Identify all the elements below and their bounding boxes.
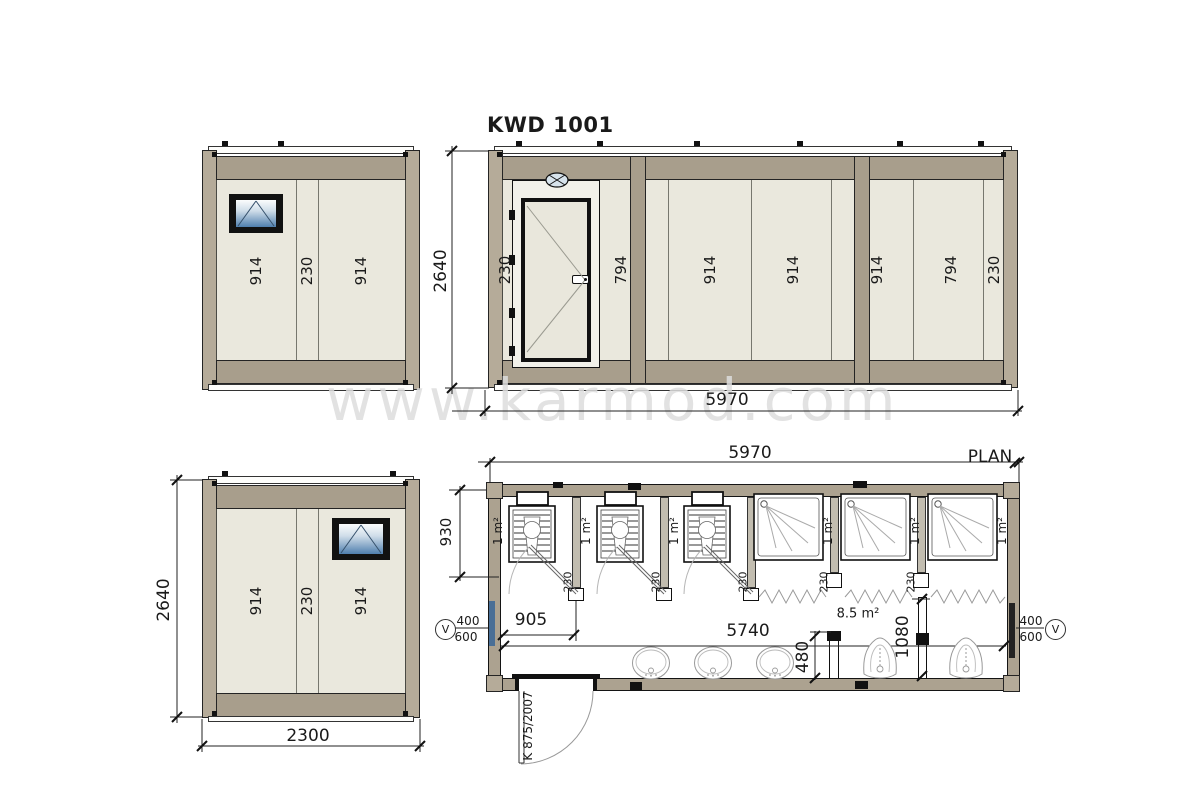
plan-length-dim-label: 5970 <box>728 443 771 463</box>
hall-area-label: 8.5 m² <box>837 607 880 622</box>
plan-corner-post <box>486 675 503 692</box>
panel-joint <box>296 180 297 360</box>
corner-fitting-icon <box>497 380 502 385</box>
top-rail <box>502 156 1004 180</box>
length-dim-label: 5970 <box>705 390 748 410</box>
panel-dim-label: 230 <box>298 257 316 286</box>
roof-clamp-icon <box>694 141 700 146</box>
roof-clamp-icon <box>897 141 903 146</box>
partition-dim-label: 230 <box>818 572 831 593</box>
panel-joint <box>913 180 914 360</box>
shower-fixtures <box>754 494 997 560</box>
corner-fitting-icon <box>1001 152 1006 157</box>
corner-post <box>405 479 420 718</box>
corner-fitting-icon <box>403 380 408 385</box>
roof-edge <box>208 146 414 154</box>
panel-dim-label: 914 <box>701 256 719 285</box>
plan-window-left <box>489 601 495 646</box>
corner-fitting-icon <box>212 711 217 716</box>
screen-dim-label: 480 <box>793 641 813 673</box>
corner-post <box>405 150 420 390</box>
bench-icon <box>512 674 600 679</box>
bottom-rail <box>216 360 406 384</box>
roof-clamp-icon <box>516 141 522 146</box>
cubicle-area-label: 1 m² <box>821 517 835 545</box>
intermediate-post <box>630 156 646 384</box>
window-height-label: 600 <box>455 630 478 644</box>
ventilation-symbol: V <box>435 619 456 640</box>
width-dim-label: 2300 <box>286 726 329 746</box>
ventilation-symbol-letter: V <box>1052 623 1060 636</box>
panel-joint <box>983 180 984 360</box>
window-height-label: 600 <box>1020 630 1043 644</box>
screen-dim-label: 1080 <box>893 615 913 658</box>
roof-drain-icon <box>553 482 563 488</box>
door-hinge-icon <box>509 346 515 356</box>
roof-clamp-icon <box>597 141 603 146</box>
door-handle-dot <box>584 278 587 281</box>
corner-fitting-icon <box>212 152 217 157</box>
panel-joint <box>296 509 297 693</box>
panel-dim-label: 230 <box>298 587 316 616</box>
roof-clamp-icon <box>797 141 803 146</box>
window-glass <box>236 200 276 227</box>
height-dim-label: 2640 <box>154 578 174 621</box>
plan-title: PLAN <box>968 447 1012 467</box>
wc-depth-dim-label: 930 <box>437 518 455 547</box>
roof-edge <box>494 146 1012 154</box>
panel-dim-label: 230 <box>985 256 1003 285</box>
corner-fitting-icon <box>212 481 217 486</box>
panel-dim-label: 794 <box>612 256 630 285</box>
window-glass <box>339 524 383 554</box>
floor-edge <box>208 384 414 391</box>
roof-clamp-icon <box>978 141 984 146</box>
corner-fitting-icon <box>1001 380 1006 385</box>
corner-post <box>1003 150 1018 388</box>
panel-dim-label: 914 <box>247 257 265 286</box>
panel-dim-label: 914 <box>352 257 370 286</box>
roof-clamp-icon <box>278 141 284 146</box>
plan-window-right <box>1009 603 1015 658</box>
panel-dim-label: 230 <box>496 256 514 285</box>
roof-clamp-icon <box>222 141 228 146</box>
corner-fitting-icon <box>497 152 502 157</box>
panel-dim-label: 914 <box>868 256 886 285</box>
plan-left-wall <box>488 484 501 691</box>
floor-edge <box>208 716 414 722</box>
cubicle-area-label: 1 m² <box>667 517 681 545</box>
partition-dim-label: 230 <box>562 572 575 593</box>
module-joint-icon <box>855 681 868 689</box>
panel-joint <box>318 509 319 693</box>
door-jamb <box>515 678 519 691</box>
cubicle-area-label: 1 m² <box>579 517 593 545</box>
roof-clamp-icon <box>222 471 228 476</box>
cubicle-area-label: 1 m² <box>908 517 922 545</box>
module-joint-icon <box>853 481 867 488</box>
ventilation-symbol-letter: V <box>442 623 450 636</box>
panel-joint <box>831 180 832 360</box>
roof-edge <box>208 476 414 484</box>
cubicle-area-label: 1 m² <box>995 517 1009 545</box>
corner-post <box>202 479 217 718</box>
door-code-label: K 875/2007 <box>521 691 535 760</box>
panel-dim-label: 914 <box>247 587 265 616</box>
top-rail <box>216 485 406 509</box>
panel-dim-label: 794 <box>942 256 960 285</box>
door-jamb <box>593 678 597 691</box>
cubicle-area-label: 1 m² <box>491 517 505 545</box>
door-hinge-icon <box>509 308 515 318</box>
drawing-title: KWD 1001 <box>487 113 614 137</box>
ventilation-symbol: V <box>1045 619 1066 640</box>
corner-fitting-icon <box>403 481 408 486</box>
corner-fitting-icon <box>403 152 408 157</box>
floor-edge <box>494 384 1012 391</box>
height-dim-label: 2640 <box>431 249 451 292</box>
panel-joint <box>318 180 319 360</box>
cubicle-door-swings <box>509 545 753 594</box>
module-joint-icon <box>628 483 641 490</box>
plan-corner-post <box>1003 675 1020 692</box>
window-width-label: 400 <box>1020 614 1043 628</box>
corner-fitting-icon <box>403 711 408 716</box>
curtain-zigzag <box>759 590 1005 603</box>
plan-bottom-wall <box>593 678 1020 691</box>
plan-top-wall <box>488 484 1020 497</box>
wc-fixtures <box>509 492 730 562</box>
plan-right-wall <box>1007 484 1020 691</box>
partition-dim-label: 230 <box>737 572 750 593</box>
partition-dim-label: 230 <box>905 572 918 593</box>
technical-drawing-sheet: www.karmod.com 914 230 914 KWD 1001 <box>0 0 1200 800</box>
panel-dim-label: 914 <box>784 256 802 285</box>
urinal-screen-cap <box>916 633 929 645</box>
top-rail <box>216 156 406 180</box>
partition-dim-label: 230 <box>650 572 663 593</box>
panel-joint <box>668 180 669 360</box>
window-width-label: 400 <box>457 614 480 628</box>
corner-fitting-icon <box>212 380 217 385</box>
door-hinge-icon <box>509 210 515 220</box>
bottom-rail <box>216 693 406 717</box>
panel-joint <box>751 180 752 360</box>
plan-corner-post <box>1003 482 1020 499</box>
module-joint-icon <box>630 682 642 690</box>
cubicle-dim-label: 905 <box>515 610 547 630</box>
interior-length-dim-label: 5740 <box>726 621 769 641</box>
roof-clamp-icon <box>390 471 396 476</box>
urinal-screen-cap <box>827 631 841 641</box>
panel-dim-label: 914 <box>352 587 370 616</box>
plan-corner-post <box>486 482 503 499</box>
corner-post <box>202 150 217 390</box>
